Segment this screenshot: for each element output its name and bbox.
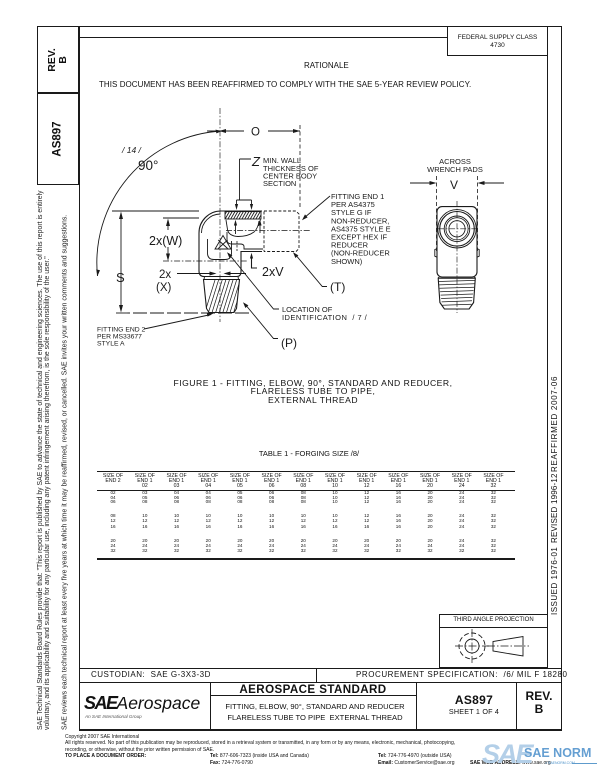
svg-text:(P): (P) (281, 336, 297, 350)
svg-text:FITTING END 2: FITTING END 2 (97, 327, 146, 334)
svg-text:2x: 2x (159, 269, 171, 281)
svg-text:2xV: 2xV (262, 265, 284, 279)
svg-text:V: V (450, 178, 458, 192)
svg-text:SECTION: SECTION (263, 179, 296, 188)
svg-text:/ 14 /: / 14 / (121, 145, 143, 155)
svg-text:(T): (T) (330, 280, 345, 294)
svg-text:PER MS33677: PER MS33677 (97, 334, 142, 341)
svg-text:90°: 90° (138, 158, 158, 173)
svg-text:STYLE A: STYLE A (97, 341, 125, 348)
svg-text:O: O (251, 127, 260, 139)
svg-text:WRENCH PADS: WRENCH PADS (427, 165, 483, 174)
svg-text:IDENTIFICATION / 7 /: IDENTIFICATION / 7 / (282, 313, 368, 322)
svg-text:Z: Z (251, 154, 261, 169)
svg-text:2x(W): 2x(W) (149, 234, 182, 248)
svg-text:SHOWN): SHOWN) (331, 257, 363, 266)
svg-text:S: S (116, 270, 125, 285)
svg-text:(X): (X) (156, 282, 172, 294)
